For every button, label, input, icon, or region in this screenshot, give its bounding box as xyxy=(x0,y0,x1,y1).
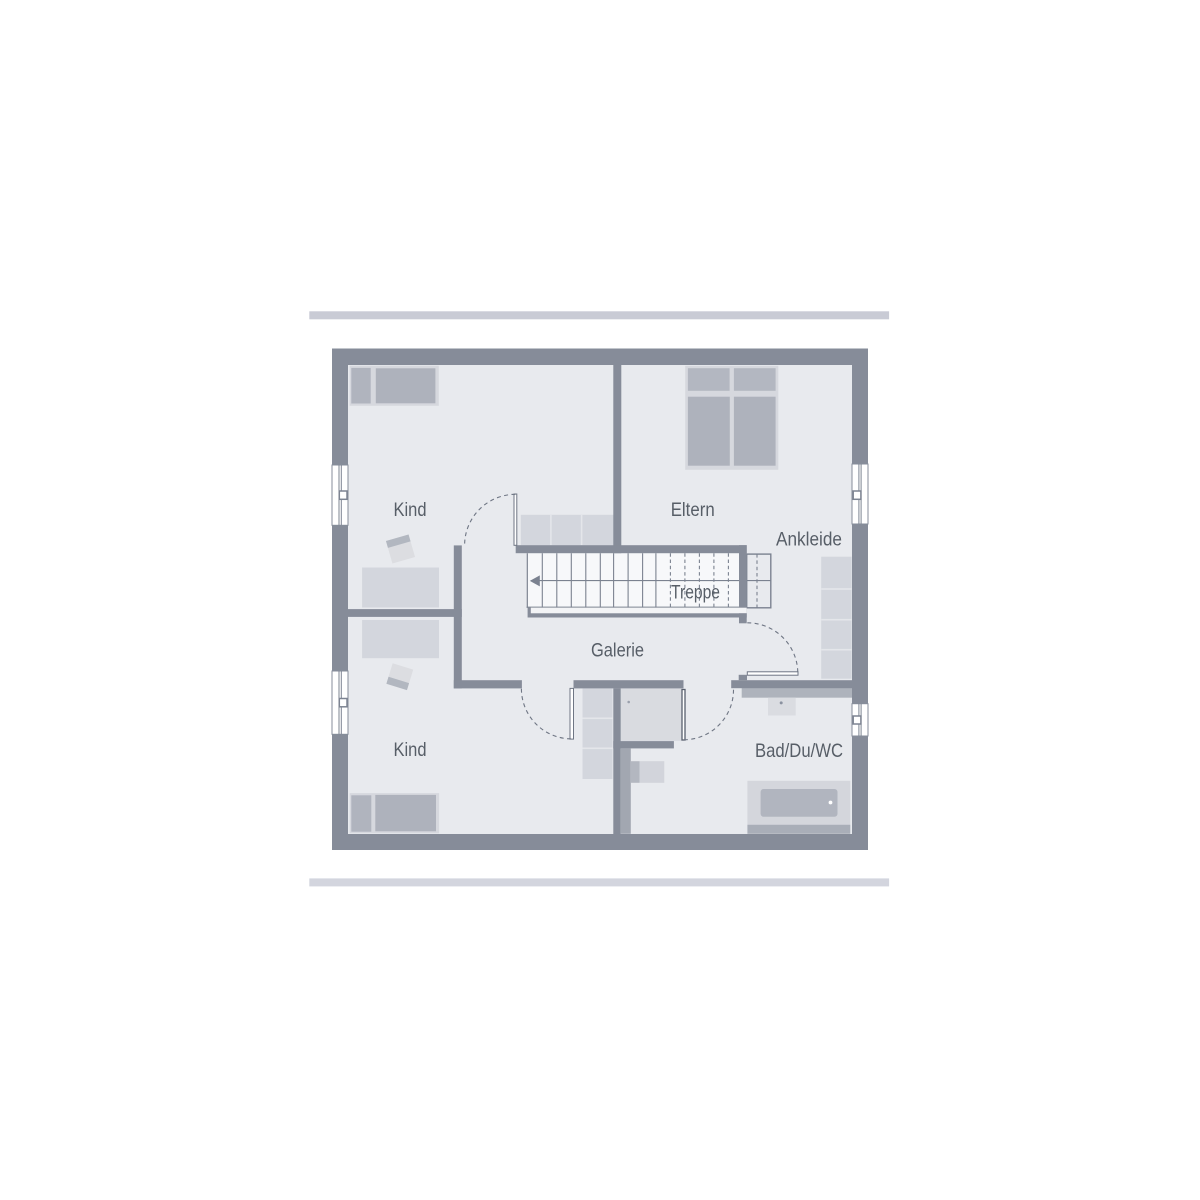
svg-text:Kind: Kind xyxy=(394,499,427,521)
svg-text:Treppe: Treppe xyxy=(671,582,720,604)
svg-text:Bad/Du/WC: Bad/Du/WC xyxy=(755,740,843,762)
svg-text:Galerie: Galerie xyxy=(591,640,644,662)
svg-text:Ankleide: Ankleide xyxy=(776,529,842,551)
svg-text:Eltern: Eltern xyxy=(671,499,715,521)
svg-text:Kind: Kind xyxy=(394,739,427,761)
